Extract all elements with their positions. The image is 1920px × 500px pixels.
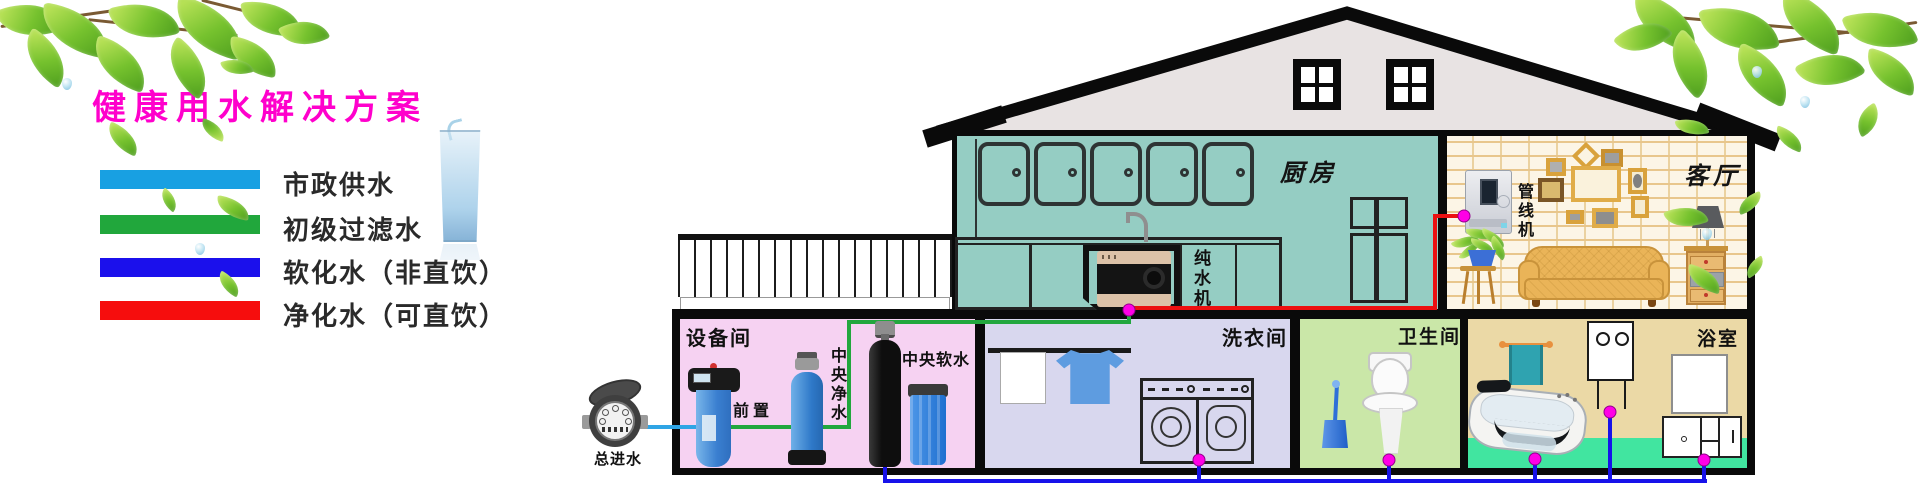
legend-item-label: 净化水（可直饮） [283,296,507,333]
cabinet-knob [1180,168,1189,177]
bath-room-label: 浴室 [1697,324,1739,351]
photo-frame [1631,196,1649,218]
brush-cup [1322,420,1348,448]
counter-divider [1180,245,1182,308]
counter-divider [1029,245,1032,308]
water-meter [586,381,646,451]
washer-drum-right [1215,416,1237,438]
heater-dial [1615,332,1629,346]
vanity-shelf-line [1700,440,1720,442]
faucet-spout [1126,214,1130,223]
stool-leg [1477,271,1480,304]
sofa-seat [1524,278,1664,300]
fence-slats [678,240,952,297]
glass-reflection [437,244,483,286]
stool-leg [1488,271,1496,304]
fridge-divider [1374,199,1379,301]
meter-dial [625,418,632,425]
pipe-segment-purified [1128,306,1437,310]
brine-tank [908,384,948,465]
water-droplet [62,78,72,90]
panel-knob [1187,385,1195,393]
lamp-pull [1700,229,1701,240]
rail-end [1499,341,1506,348]
laundry-toilet-wall [1290,319,1300,468]
toilet-pedestal [1379,408,1403,454]
cabinet-knob [1012,168,1021,177]
water-heater [1587,321,1634,381]
pipe-joint-dot [1458,210,1471,223]
stool-leg [1462,271,1470,304]
washing-machines [1140,378,1254,464]
central-softener-label: 中央软水 [902,346,970,370]
pipe-joint-dot [1529,453,1542,466]
laundry-room-label: 洗衣间 [1222,322,1288,351]
counter-top-line [955,243,1282,245]
leaf [1772,125,1806,152]
vanity-divider [1718,418,1720,456]
leaf [1724,42,1800,107]
equipment-room-label: 设备间 [686,322,752,351]
bottom-outer-wall [672,468,1755,475]
right-outer-wall [1747,133,1755,475]
purifier-base [788,450,826,465]
panel-dashes [1148,388,1184,391]
prefilter-gauge [693,373,711,383]
pipe-segment-softened [1608,411,1612,481]
machine-knob [1143,267,1165,289]
panel-dashes [1203,388,1239,391]
photo-frame [1628,168,1647,194]
legend-swatch-2 [100,258,260,277]
tub-headrest [1477,380,1511,393]
sofa-leg [1648,300,1656,307]
meter-dial [622,409,629,416]
brine-body [910,395,946,465]
toilet [1360,350,1420,455]
pipe-segment-primary [847,322,851,429]
pure-water-machine [1097,251,1171,307]
bath-towel [1509,345,1543,385]
attic-window [1390,63,1430,106]
frame-photo [1633,174,1642,188]
photo-frame [1592,208,1618,228]
potted-plant [1452,226,1508,306]
brush-handle-tip [1332,380,1340,388]
brush-handle [1333,382,1339,424]
washer-drum-left-inner [1160,416,1182,438]
lamp-pull [1714,229,1715,238]
water-glass-image [437,124,483,284]
vanity-knob [1681,436,1687,442]
leaf [156,188,182,213]
prefilter-label: 前置 [733,397,773,421]
fridge-top [1350,197,1408,229]
photo-frame [1601,149,1623,167]
legend-swatch-3 [100,301,260,320]
purifier-valve-body [795,358,819,370]
photo-frame [1571,166,1621,202]
attic-window [1297,63,1337,106]
softener-tank [869,340,901,467]
leaf [1850,103,1886,138]
kitchen-cabinet-door [1090,142,1142,206]
counter-divider [1235,245,1237,308]
pure-water-machine-label: 纯水机 [1192,249,1209,309]
legend-item-label: 市政供水 [283,165,395,202]
heater-pipe [1597,381,1599,409]
kitchen-cabinet-door [1034,142,1086,206]
cabinet-knob [1068,168,1077,177]
meter-dial [602,409,609,416]
meter-dial [599,418,606,425]
legend-item-label: 初级过滤水 [283,210,423,247]
heater-dial [1596,332,1610,346]
pipe-joint-dot [1698,454,1711,467]
sofa [1518,246,1670,307]
ceiling-line [948,130,1757,136]
vanity-divider [1700,418,1702,456]
bath-vanity [1662,416,1742,458]
leaf [108,0,181,50]
pipeline-machine [1465,170,1512,234]
central-purifier [788,352,826,465]
bath-mirror [1671,354,1728,414]
meter-counter [602,427,628,432]
central-purifier-label: 中央净水 [828,347,844,423]
pipe-segment-purified [1433,216,1437,310]
heater-pipe [1624,381,1626,409]
banner: 健康用水解决方案 市政供水 初级过滤水 软化水（非直饮） 净化水（可直饮） [0,0,1920,500]
drawer-knob [1704,260,1708,264]
kitchen-living-wall [1438,131,1447,310]
hanging-towel [1000,352,1046,404]
washer-divider [1196,397,1199,461]
kitchen-cabinet-door [1146,142,1198,206]
photo-frame [1566,210,1584,224]
main-inlet-label: 总进水 [594,448,642,469]
sofa-back [1524,246,1664,280]
cabinet-knob [1236,168,1245,177]
pipe-joint-dot [1604,406,1617,419]
photo-frame [1538,178,1564,202]
left-outer-wall [672,319,680,475]
kitchen-cabinet-door [1202,142,1254,206]
sofa-leg [1532,300,1540,307]
prefilter-sticker [702,415,716,441]
photo-frame [1546,158,1566,176]
purifier-tank [791,372,823,454]
equipment-laundry-wall [975,319,985,468]
toilet-brush [1320,382,1350,448]
drawer-knob [1704,293,1708,297]
pipe-joint-dot [1123,304,1136,317]
toilet-room-label: 卫生间 [1398,322,1461,349]
kitchen-cabinet-door [978,142,1030,206]
pipe-joint-dot [1383,454,1396,467]
panel-knob [1241,385,1249,393]
vanity-handle [1732,430,1734,443]
glass-body [437,130,483,242]
central-softener [867,321,903,467]
machine-fan [1497,195,1510,208]
rail-end [1546,341,1553,348]
water-droplet [1800,96,1810,108]
kitchen-label: 厨房 [1280,153,1338,188]
living-room-label: 客厅 [1684,156,1742,191]
meter-dial [612,405,619,412]
pipe-joint-dot [1193,454,1206,467]
machine-dots [1102,255,1118,259]
leaf [1860,48,1920,97]
mid-floor-band [672,309,1755,319]
cabinet-knob [1124,168,1133,177]
pipeline-machine-label: 管线机 [1515,183,1531,240]
fence [678,234,952,317]
machine-screen [1480,179,1498,205]
fridge-bottom [1350,233,1408,303]
legend-swatch-0 [100,170,260,189]
pipe-segment-softened [883,479,1707,483]
water-droplet [195,243,205,255]
